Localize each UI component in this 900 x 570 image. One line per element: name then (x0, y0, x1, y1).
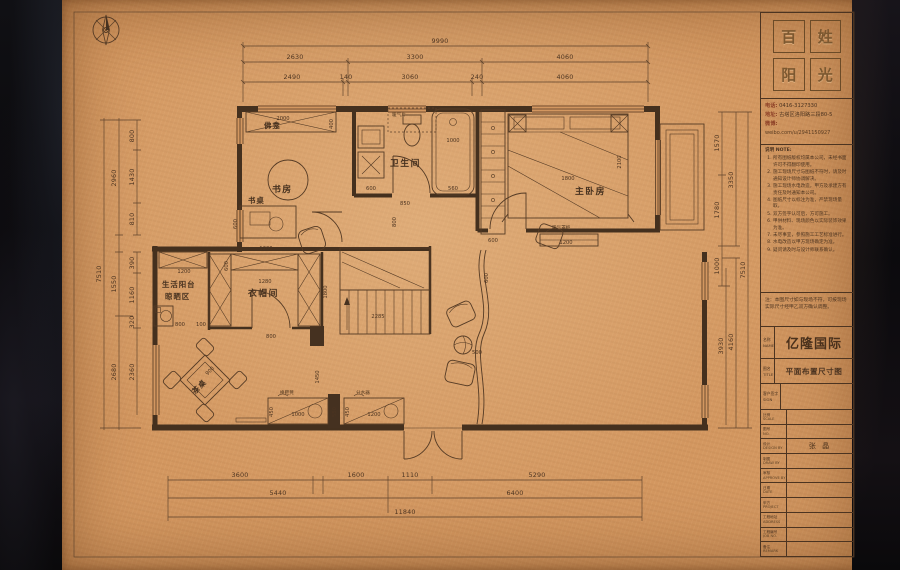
dim: 450 (269, 407, 275, 417)
dim: 1110 (401, 471, 418, 479)
signature-label: 客户签字 SIGN (761, 384, 781, 409)
dim: 810 (128, 213, 136, 226)
dim: 600 (224, 261, 230, 271)
radiator-label: 暖气片 (392, 111, 406, 118)
row-label-en: DRAW BY (763, 461, 786, 465)
notes-list: 所有图纸版权均属本公司，未经书面许可不得翻印使用。 施工现场尺寸与图纸不符时，请… (765, 156, 849, 254)
dim: 600 (233, 219, 239, 229)
dim: 1550 (110, 275, 118, 292)
dim: 240 (471, 73, 484, 81)
dim: 1280 (258, 279, 271, 285)
address-line: 地址: 古塔区洛阳路三段80-5 (765, 111, 849, 120)
dim: 6400 (506, 489, 523, 497)
nightstand-icon (509, 115, 526, 132)
row-label-en: DATE (763, 490, 786, 494)
weibo-url: weibo.com/u/2941150927 (765, 129, 849, 138)
dim: 1780 (713, 201, 721, 218)
chair-icon (228, 370, 248, 390)
tea-area: 茶桌 900 (162, 337, 266, 423)
chair-icon (195, 337, 215, 357)
phone-label: 电话: (765, 103, 777, 109)
label-en: NAME (763, 343, 774, 348)
room-life-balcony: 1200 生活阳台 晾晒区 800 100 (154, 252, 207, 328)
note-item: 施工现场水电改造，甲方及承建方有责任及时通知本公司。 (773, 184, 849, 197)
drawing-title: 平面布置尺寸图 (775, 366, 853, 377)
row-label-en: JOB NO. (763, 534, 786, 538)
cloak-label: 衣帽间 (248, 287, 279, 299)
note-item: 双方签字认可后，方可施工。 (773, 212, 849, 218)
chair-icon (162, 370, 182, 390)
dim: 390 (128, 257, 136, 270)
dim: 600 (488, 238, 498, 244)
dim: 800 (175, 322, 185, 328)
dim: 100 (196, 322, 206, 328)
radiator-cabinet: 暖气罩柜 1200 (540, 224, 598, 246)
row-label-en: REMARK (763, 549, 786, 553)
note-item: 未尽事宜，参照施工工艺标准进行。 (773, 233, 849, 239)
room-bath: 600 暖气片 卫生间 1000 560 850 800 (358, 108, 474, 227)
dim: 2960 (110, 169, 118, 186)
shoe-bench-icon: 换鞋凳 1000 450 (268, 389, 328, 424)
row-label-en: SCALE (763, 417, 786, 421)
info-rows: 比例SCALE 图号NO. 设计DESIGN BY 张 晶 制图DRAW BY … (761, 410, 853, 497)
signature-row: 客户签字 SIGN (761, 384, 853, 410)
row-value (787, 410, 853, 424)
room-study: 2000 400 佛龛 书房 书桌 1200 600 (233, 112, 336, 255)
dim: 2630 (286, 53, 303, 61)
dim: 4060 (556, 73, 573, 81)
dim: 400 (329, 119, 335, 129)
dim: 2100 (617, 155, 623, 168)
info-row: 比例SCALE (761, 410, 853, 425)
dim: 4060 (556, 53, 573, 61)
logo-char: 阳 (773, 58, 805, 91)
dim: 850 (400, 201, 410, 207)
shoe-bench-label: 换鞋凳 (280, 389, 294, 396)
row-label-en: APPROVE BY (763, 476, 786, 480)
contact-info: 电话: 0416-3127330 地址: 古塔区洛阳路三段80-5 微博:wei… (761, 99, 853, 145)
dim: 5440 (269, 489, 286, 497)
dim: 11840 (394, 508, 415, 516)
note-item: 所有图纸版权均属本公司，未经书面许可不得翻印使用。 (773, 156, 849, 169)
dim: 1200 (177, 269, 190, 275)
info-row: 日期DATE (761, 483, 853, 497)
dim: 600 (366, 186, 376, 192)
dim: 1000 (291, 412, 304, 418)
note-item: 疑问请及时与设计师联系确认。 (773, 248, 849, 254)
dim: 550 (332, 407, 338, 417)
footer-row: 工程编号JOB NO. (761, 528, 853, 543)
bath-label: 卫生间 (390, 157, 421, 169)
dim: 1200 (367, 412, 380, 418)
dim: 3600 (231, 471, 248, 479)
notes-section: 说明 NOTE: 所有图纸版权均属本公司，未经书面许可不得翻印使用。 施工现场尺… (761, 145, 853, 293)
chair-icon (445, 299, 477, 328)
row-value (787, 483, 853, 497)
row-value (787, 454, 853, 468)
dim: 1000 (713, 257, 721, 274)
dim: 2360 (128, 363, 136, 380)
notes-heading: 说明 NOTE: (765, 148, 849, 154)
dim: 800 (128, 130, 136, 143)
dim: 9990 (431, 37, 448, 45)
dim: 450 (345, 407, 351, 417)
label-en: TITLE (763, 372, 774, 377)
shrine-label: 佛龛 (263, 121, 281, 130)
dim: 600 (484, 273, 490, 283)
dim: 800 (266, 334, 276, 340)
bed-icon (502, 114, 634, 222)
row-label-en: DESIGN BY (763, 446, 786, 450)
address-label: 地址: (765, 112, 777, 118)
info-row: 审核APPROVE BY (761, 469, 853, 484)
project-name-label: 名称 NAME (761, 327, 775, 358)
stairs-icon: 2285 (340, 248, 430, 334)
dim: 2680 (110, 363, 118, 380)
dim: 5290 (528, 471, 545, 479)
footer-fields: 甲方PROJECT 工程地址ADDRESS 工程编号JOB NO. 备注REMA… (761, 497, 853, 556)
logo-char: 光 (810, 58, 842, 91)
note-item: 水电改造以甲方现场确定为准。 (773, 240, 849, 246)
weibo-line: 微博:weibo.com/u/2941150927 (765, 120, 849, 138)
dim: 500 (472, 350, 482, 356)
logo-char: 百 (773, 20, 805, 53)
study-label: 书房 (272, 183, 293, 195)
desk-icon (240, 206, 296, 238)
company-logo: 百 姓 阳 光 (761, 13, 853, 99)
row-label-en: ADDRESS (763, 520, 786, 524)
dim: 2285 (371, 314, 384, 320)
nightstand-icon (611, 115, 628, 132)
dim: 800 (392, 217, 398, 227)
dim: 1200 (259, 246, 272, 252)
note-item: 图纸尺寸以标注为准，严禁现场量取。 (773, 198, 849, 211)
dim: 320 (128, 316, 136, 329)
dim: 1430 (128, 168, 136, 185)
dim: 3300 (406, 53, 423, 61)
manifold-icon: 分水器 1200 450 (344, 389, 404, 424)
dim: 1600 (347, 471, 364, 479)
title-block: 百 姓 阳 光 电话: 0416-3127330 地址: 古塔区洛阳路三段80-… (760, 12, 854, 557)
note-item: 施工现场尺寸与图纸不符时，请及时通知设计师协调解决。 (773, 170, 849, 183)
dim: 7510 (95, 265, 103, 282)
dim: 3060 (401, 73, 418, 81)
manifold-label: 分水器 (356, 389, 370, 396)
drawing-title-row: 图名 TITLE 平面布置尺寸图 (761, 359, 853, 384)
desk-label: 书桌 (248, 196, 265, 205)
footer-row: 甲方PROJECT (761, 498, 853, 513)
site-note: 注：本图尺寸如与现场不符，可按现场实际尺寸经甲乙双方确认调整。 (761, 293, 853, 327)
chair-icon (195, 403, 215, 423)
life-balcony-label-1: 生活阳台 (162, 280, 196, 289)
logo-char: 姓 (810, 20, 842, 53)
dim: 7510 (739, 261, 747, 278)
dim: 2490 (283, 73, 300, 81)
dim: 140 (340, 73, 353, 81)
fan-icon (454, 336, 472, 354)
dim: 1000 (446, 138, 459, 144)
dim: 560 (448, 186, 458, 192)
designer-name: 张 晶 (787, 439, 853, 453)
info-row: 制图DRAW BY (761, 454, 853, 469)
balcony-icon (660, 124, 704, 230)
tea-table-label: 茶桌 (190, 378, 209, 397)
row-label-en: PROJECT (763, 505, 786, 509)
footer-row: 备注REMARK (761, 542, 853, 556)
weibo-label: 微博: (765, 121, 777, 127)
bathtub-icon (432, 109, 474, 195)
project-name: 亿隆国际 (775, 333, 853, 352)
info-row: 设计DESIGN BY 张 晶 (761, 439, 853, 454)
drawing-title-label: 图名 TITLE (761, 359, 775, 383)
dim: 3350 (727, 171, 735, 188)
info-row: 图号NO. (761, 425, 853, 440)
note-item: 甲供材料、现场颜色以实际装饰效果为准。 (773, 219, 849, 232)
master-label: 主卧房 (575, 185, 606, 197)
dim: 900 (205, 366, 216, 377)
footer-row: 工程地址ADDRESS (761, 513, 853, 528)
dim: 1800 (561, 176, 574, 182)
compass-icon (93, 15, 119, 45)
phone-value: 0416-3127330 (779, 103, 817, 109)
dim: 1450 (315, 370, 321, 383)
dim: 4160 (727, 333, 735, 350)
life-balcony-label-2: 晾晒区 (165, 292, 190, 301)
dim: 3930 (717, 337, 725, 354)
radiator-cabinet-label: 暖气罩柜 (552, 224, 571, 231)
dim: 1570 (713, 134, 721, 151)
dim: 1200 (559, 240, 572, 246)
dim: 1800 (323, 285, 329, 298)
phone-line: 电话: 0416-3127330 (765, 102, 849, 111)
label-en: SIGN (763, 397, 780, 402)
chair-icon (444, 359, 476, 386)
address-value: 古塔区洛阳路三段80-5 (779, 112, 832, 118)
row-value (787, 425, 853, 439)
row-value (787, 469, 853, 483)
row-label-en: NO. (763, 432, 786, 436)
dim: 1160 (128, 286, 136, 303)
project-name-row: 名称 NAME 亿隆国际 (761, 327, 853, 359)
